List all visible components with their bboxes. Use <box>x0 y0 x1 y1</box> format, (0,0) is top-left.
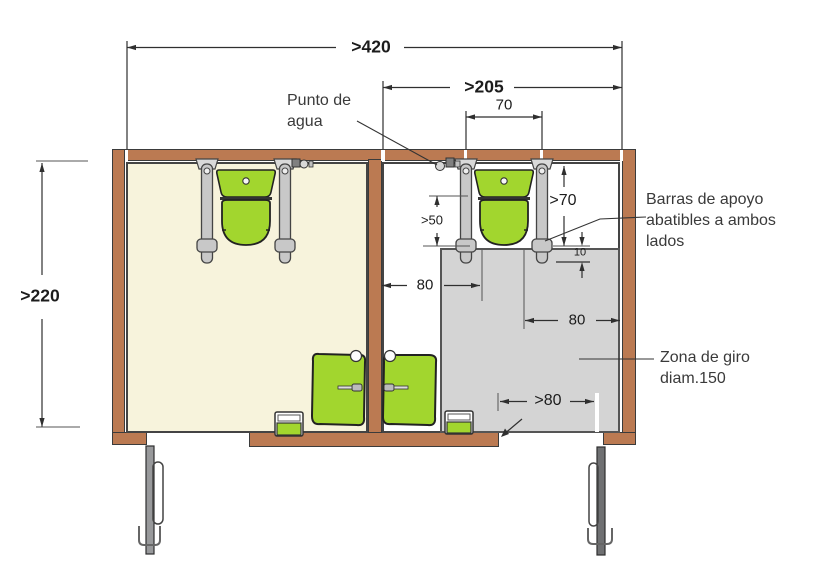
wall-bottom-left <box>112 432 147 445</box>
wall-tick <box>540 150 543 161</box>
dim-bar-length: >70 <box>549 193 576 209</box>
dim-toilet-depth: >50 <box>421 214 443 227</box>
wall-left <box>112 149 125 445</box>
wall-tick <box>381 150 385 161</box>
door-leaf <box>588 447 612 555</box>
floor-plan-canvas: >420 >205 70 >220 >50 >70 10 80 80 >80 P… <box>0 0 818 582</box>
dim-total-depth: >220 <box>20 287 59 305</box>
dim-bar-spacing: 70 <box>496 98 513 113</box>
turning-zone <box>440 248 620 433</box>
label-water-point: Punto de agua <box>287 90 367 132</box>
wall-tick <box>125 150 128 161</box>
wall-tick <box>464 150 467 161</box>
dimension-total-width <box>127 41 622 149</box>
dimension-bar-spacing <box>466 111 542 149</box>
dim-cabin-width: >205 <box>464 78 503 96</box>
label-turning-zone: Zona de giro diam.150 <box>660 347 780 389</box>
dim-bar-zone-gap: 10 <box>574 248 586 259</box>
dim-transfer-left: 80 <box>417 278 434 293</box>
dim-door-width: >80 <box>534 393 561 409</box>
wall-bottom-right <box>603 432 636 445</box>
wall-tick <box>620 150 623 161</box>
label-grab-bars: Barras de apoyo abatibles a ambos lados <box>646 189 796 252</box>
door-leaf <box>139 446 163 554</box>
wall-divider <box>368 159 382 447</box>
wall-bottom-center <box>249 432 499 447</box>
left-cabin-floor <box>126 162 368 433</box>
wall-right <box>622 149 636 445</box>
dim-transfer-right: 80 <box>569 313 586 328</box>
dim-total-width: >420 <box>351 38 390 56</box>
